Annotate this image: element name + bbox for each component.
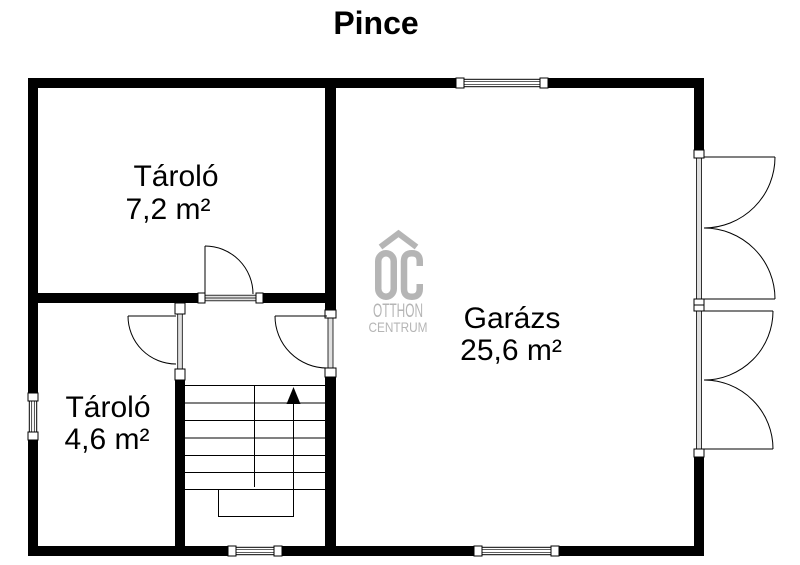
door-swing-arc [275, 316, 327, 368]
storage2-door-opening [175, 303, 185, 380]
door-jamb [175, 369, 185, 380]
wall-segment [548, 78, 704, 88]
wall-segment [28, 78, 38, 393]
interior-walls [38, 88, 336, 546]
door-jamb [694, 299, 704, 305]
wall-segment [282, 546, 474, 556]
otthon-centrum-logo: OTTHON CENTRUM [369, 234, 428, 336]
door-swing-arc [704, 157, 775, 228]
room-area: 7,2 m² [125, 193, 210, 226]
room-name: Garázs [464, 302, 561, 335]
plan-title: Pince [333, 5, 418, 41]
door-jamb [256, 293, 263, 303]
room-area: 25,6 m² [460, 334, 562, 367]
garage-interior-door-opening [325, 310, 336, 377]
logo-letter-c [404, 253, 420, 297]
wall-segment [325, 377, 336, 546]
window-bottom-stairs [228, 546, 282, 556]
door-swing-arc [205, 246, 253, 294]
storage1-door-opening [198, 293, 263, 303]
room-name: Tároló [133, 160, 218, 193]
door-jamb [694, 449, 704, 457]
window-bottom-garage [474, 546, 559, 556]
door-swing-arc [128, 316, 176, 364]
window-top [456, 78, 548, 88]
wall-segment [559, 546, 704, 556]
door-jamb [198, 293, 205, 303]
door-swing-arc [704, 380, 773, 449]
logo-text-centrum: CENTRUM [369, 319, 428, 335]
window-left [28, 393, 38, 440]
wall-segment [175, 380, 185, 546]
door-jamb [175, 303, 185, 314]
logo-letter-o [378, 253, 394, 297]
logo-roof-icon [381, 234, 417, 248]
door-jamb [694, 150, 704, 158]
floor-plan-page: OTTHON CENTRUM Pince Tároló 7,2 m² Garáz… [0, 0, 800, 565]
door-jamb [694, 305, 704, 311]
door-swing-arc [704, 311, 773, 380]
wall-segment [28, 546, 228, 556]
wall-segment [694, 457, 704, 556]
door-jamb [325, 368, 336, 377]
wall-segment [38, 293, 198, 303]
room-label-storage2: Tároló 4,6 m² [64, 391, 150, 456]
wall-segment [28, 78, 456, 88]
room-area: 4,6 m² [64, 423, 149, 456]
wall-segment [263, 293, 336, 303]
wall-segment [28, 440, 38, 556]
room-name: Tároló [65, 391, 150, 424]
stairs-up-arrow-icon [287, 387, 301, 404]
door-swing-arc [704, 228, 775, 299]
floor-plan-drawing: OTTHON CENTRUM Pince Tároló 7,2 m² Garáz… [0, 0, 800, 565]
outer-walls [28, 78, 704, 556]
garage-door-opening [694, 150, 704, 457]
wall-segment [325, 88, 336, 310]
wall-segment [694, 78, 704, 150]
door-jamb [325, 310, 336, 318]
staircase [185, 386, 325, 517]
room-label-storage1: Tároló 7,2 m² [125, 160, 218, 226]
room-label-garage: Garázs 25,6 m² [460, 302, 562, 367]
